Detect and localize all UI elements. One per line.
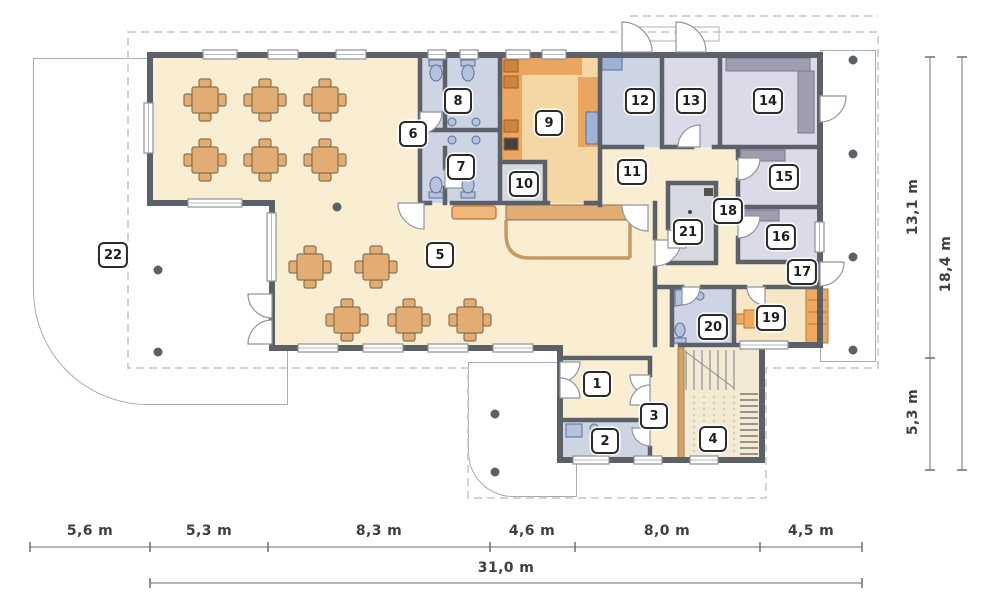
room-marker-20: 20 xyxy=(698,314,728,340)
bar-counter-top xyxy=(506,205,630,220)
dim-label-1: 5,6 m xyxy=(67,523,113,539)
room-marker-13: 13 xyxy=(676,88,706,114)
kitchen-counter-top xyxy=(520,57,582,75)
dim-label-3: 8,3 m xyxy=(356,523,402,539)
closet-room14-right xyxy=(798,71,814,133)
counter-room12 xyxy=(602,57,622,70)
room-marker-22: 22 xyxy=(98,242,128,268)
room-floor-dining-annex xyxy=(150,55,420,203)
room-marker-21: 21 xyxy=(673,219,703,245)
room-marker-6: 6 xyxy=(399,121,427,147)
room-marker-19: 19 xyxy=(756,305,786,331)
kitchen-appliance xyxy=(504,76,518,88)
closet-room14-top xyxy=(726,58,810,71)
kitchen-appliance xyxy=(504,120,518,132)
room-marker-11: 11 xyxy=(617,159,647,185)
dim-label-right-upper: 13,1 m xyxy=(905,179,921,235)
dim-label-right-lower: 5,3 m xyxy=(905,389,921,435)
room-marker-18: 18 xyxy=(713,198,743,224)
room-marker-16: 16 xyxy=(766,224,796,250)
floor-plan: 12345678910111213141516171819202122 5,6 … xyxy=(0,0,1000,616)
room-marker-17: 17 xyxy=(787,259,817,285)
room-marker-3: 3 xyxy=(640,403,668,429)
room-marker-10: 10 xyxy=(509,171,539,197)
room2-washer xyxy=(566,424,582,437)
room21-boiler xyxy=(704,188,713,196)
room-marker-8: 8 xyxy=(444,88,472,114)
dim-label-right-total: 18,4 m xyxy=(938,236,954,292)
floor-plan-canvas xyxy=(0,0,1000,616)
room-marker-4: 4 xyxy=(699,426,727,452)
kitchen-sink xyxy=(586,112,598,144)
hall-bench xyxy=(452,206,496,219)
room20-toilet-tank xyxy=(674,338,686,343)
dim-label-4: 4,6 m xyxy=(509,523,555,539)
room-marker-15: 15 xyxy=(769,164,799,190)
room-marker-2: 2 xyxy=(591,428,619,454)
room21-drain xyxy=(688,210,692,214)
room-marker-1: 1 xyxy=(583,371,611,397)
room19-stool xyxy=(736,314,744,324)
dim-label-2: 5,3 m xyxy=(186,523,232,539)
room-marker-12: 12 xyxy=(625,88,655,114)
room-marker-14: 14 xyxy=(753,88,783,114)
kitchen-stove xyxy=(504,138,518,150)
dim-label-total-width: 31,0 m xyxy=(478,560,534,576)
room-marker-7: 7 xyxy=(447,154,475,180)
room20-toilet xyxy=(675,323,685,337)
dim-label-6: 4,5 m xyxy=(788,523,834,539)
room-marker-5: 5 xyxy=(426,242,454,268)
room-marker-9: 9 xyxy=(535,110,563,136)
kitchen-appliance xyxy=(504,60,518,72)
dim-label-5: 8,0 m xyxy=(644,523,690,539)
